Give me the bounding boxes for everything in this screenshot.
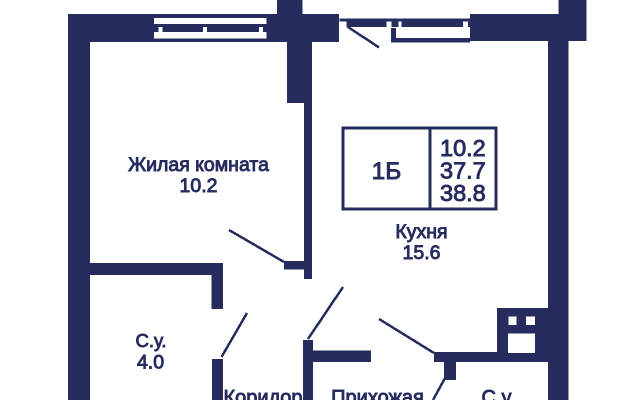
svg-text:Прихожая: Прихожая [331,387,424,400]
svg-text:Коридор: Коридор [224,387,303,400]
svg-text:С.у: С.у [482,387,512,400]
svg-text:Кухня: Кухня [395,221,447,243]
svg-text:15.6: 15.6 [403,242,441,264]
svg-text:4.0: 4.0 [137,352,164,374]
svg-text:С.у.: С.у. [135,330,166,351]
svg-text:Жилая комната: Жилая комната [128,154,269,176]
svg-text:1Б: 1Б [372,158,402,185]
svg-text:38.8: 38.8 [440,180,486,206]
svg-text:10.2: 10.2 [180,175,218,197]
